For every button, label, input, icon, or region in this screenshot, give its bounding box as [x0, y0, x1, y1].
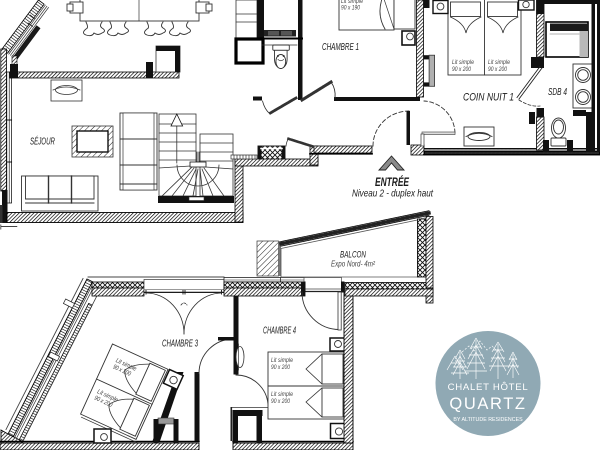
svg-text:BALCON: BALCON [340, 250, 366, 260]
svg-text:CHAMBRE 3: CHAMBRE 3 [162, 338, 198, 350]
svg-text:90 x 200: 90 x 200 [452, 66, 471, 73]
svg-text:Lit simple: Lit simple [271, 357, 293, 364]
svg-text:CHALET HÔTEL: CHALET HÔTEL [448, 382, 529, 393]
svg-text:90 x 200: 90 x 200 [271, 364, 290, 371]
svg-text:90 x 200: 90 x 200 [271, 398, 290, 405]
svg-text:CHAMBRE 4: CHAMBRE 4 [263, 325, 296, 337]
svg-text:90 x 200: 90 x 200 [488, 66, 507, 73]
svg-text:SÉJOUR: SÉJOUR [30, 135, 55, 148]
svg-text:BY ALTITUDE RESIDENCES: BY ALTITUDE RESIDENCES [453, 417, 523, 423]
svg-text:Expo Nord- 4m²: Expo Nord- 4m² [331, 260, 375, 269]
svg-text:Lit simple: Lit simple [271, 391, 293, 398]
svg-text:SDB 4: SDB 4 [548, 86, 567, 98]
svg-text:Lit simple: Lit simple [452, 59, 474, 66]
svg-text:Niveau 2 - duplex haut: Niveau 2 - duplex haut [352, 188, 434, 200]
svg-text:Lit simple: Lit simple [488, 59, 510, 66]
svg-text:QUARTZ: QUARTZ [449, 395, 526, 413]
svg-text:CHAMBRE 1: CHAMBRE 1 [322, 41, 359, 53]
svg-text:90 x 190: 90 x 190 [341, 5, 360, 12]
svg-text:COIN NUIT 1: COIN NUIT 1 [463, 92, 514, 104]
